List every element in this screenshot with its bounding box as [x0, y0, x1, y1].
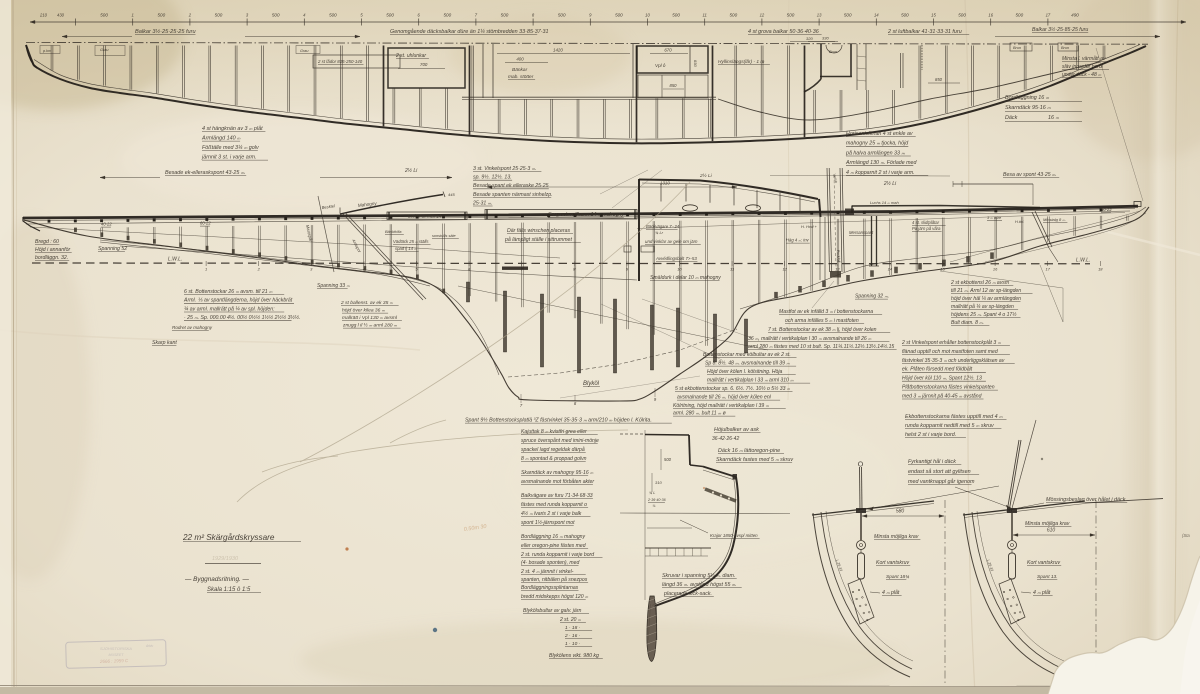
- svg-text:850: 850: [670, 83, 678, 88]
- svg-text:mallrätt på ¼ av sp-längden: mallrätt på ¼ av sp-längden: [951, 303, 1014, 310]
- svg-text:4 ₘ plåt: 4 ₘ plåt: [1033, 589, 1051, 596]
- svg-text:670: 670: [664, 48, 672, 53]
- svg-text:Mersanspant: Mersanspant: [849, 230, 874, 235]
- svg-text:500: 500: [443, 13, 451, 18]
- svg-text:15: 15: [940, 267, 945, 272]
- svg-text:under däck - 48 ₘ: under däck - 48 ₘ: [1062, 72, 1102, 78]
- svg-text:H. Hnd +: H. Hnd +: [801, 224, 818, 229]
- svg-text:runda kopparnit nedtill med 5: runda kopparnit nedtill med 5 ₘ skruv: [905, 423, 994, 429]
- svg-text:med 3 ₘ järnnit på 40-45 ₘ avs: med 3 ₘ järnnit på 40-45 ₘ avstånd: [902, 392, 982, 399]
- svg-text:320: 320: [806, 36, 813, 41]
- svg-text:mallrätt i vertikalplan l 33 ₘ: mallrätt i vertikalplan l 33 ₘ arml 310 …: [707, 378, 794, 384]
- svg-text:Spant 18¾: Spant 18¾: [886, 574, 909, 580]
- svg-text:Bregd : 60: Bregd : 60: [35, 239, 59, 245]
- svg-text:500: 500: [901, 13, 909, 18]
- svg-text:eller oregon-pine fästes med: eller oregon-pine fästes med: [521, 543, 586, 549]
- svg-text:16: 16: [993, 267, 998, 272]
- svg-text:fästvinkel 35·35·3 ₘ och und: fästvinkel 35·35·3 ₘ och underliggskläts…: [902, 358, 1005, 364]
- svg-text:3 st. Vinkelspont 25·25·3 ₘ.: 3 st. Vinkelspont 25·25·3 ₘ.: [473, 166, 536, 172]
- svg-text:2 st ekbottensl 26 ₘ avsm: 2 st ekbottensl 26 ₘ avsm: [950, 280, 1009, 286]
- svg-text:fästes med runda kopparnit o: fästes med runda kopparnit o: [521, 502, 587, 508]
- svg-text:(Sta: (Sta: [1182, 533, 1190, 538]
- svg-text:10: 10: [645, 13, 650, 18]
- svg-text:500: 500: [558, 13, 566, 18]
- svg-text:13: 13: [817, 13, 822, 18]
- svg-text:(4· bosade sponten), med: (4· bosade sponten), med: [521, 560, 579, 566]
- svg-text:Minsta möjliga krav: Minsta möjliga krav: [1025, 521, 1070, 527]
- svg-text:Pa järn på våra: Pa järn på våra: [912, 226, 941, 231]
- svg-text:Sarg och ruffkarm 14 ₘ mahogn: Sarg och ruffkarm 14 ₘ mahogny: [548, 212, 624, 218]
- svg-text:Minstalg 8 ₘ.: Minstalg 8 ₘ.: [1043, 217, 1066, 222]
- svg-text:6 st. Bottenstockar 26 ₘ avsm: 6 st. Bottenstockar 26 ₘ avsm. till 21 ₘ: [184, 289, 273, 295]
- svg-text:Höjd i annanför: Höjd i annanför: [35, 247, 70, 253]
- svg-text:490: 490: [1071, 13, 1079, 18]
- svg-text:Spanning 33 ₘ: Spanning 33 ₘ: [317, 283, 350, 289]
- svg-text:Höjulbalker av ask: Höjulbalker av ask: [714, 427, 759, 433]
- svg-text:40·22: 40·22: [101, 222, 112, 227]
- svg-text:avsmalnande mot förbåten akter: avsmalnande mot förbåten akter: [521, 478, 594, 485]
- svg-text:500: 500: [272, 13, 280, 18]
- svg-text:500: 500: [729, 13, 737, 18]
- svg-text:Skarp kant: Skarp kant: [152, 340, 177, 346]
- svg-text:2½ Li: 2½ Li: [699, 172, 713, 179]
- svg-text:17: 17: [1045, 267, 1050, 272]
- svg-text:1310: 1310: [660, 181, 670, 186]
- svg-text:Bäckvägare 7··34: Bäckvägare 7··34: [646, 224, 680, 229]
- svg-text:Mössingsbeslag över hålet i dä: Mössingsbeslag över hålet i däck: [1046, 496, 1126, 503]
- svg-text:Genomgående däcksbalkar düre ä: Genomgående däcksbalkar düre än 1¼ stömb…: [390, 28, 549, 35]
- svg-text:500: 500: [672, 13, 680, 18]
- svg-text:Skala 1:15 ö 1:5: Skala 1:15 ö 1:5: [207, 587, 251, 593]
- svg-text:Skarndäck fastes med 5 ₘ skruv: Skarndäck fastes med 5 ₘ skruv: [716, 457, 793, 463]
- svg-text:höjd över kilea 36 ₘ: höjd över kilea 36 ₘ: [342, 308, 386, 314]
- svg-text:500: 500: [157, 13, 165, 18]
- svg-text:2 st. uhlunkar: 2 st. uhlunkar: [395, 53, 426, 59]
- svg-text:580: 580: [896, 509, 905, 515]
- svg-text:spruce överspånt med imini-mön: spruce överspånt med imini-mönje: [521, 437, 599, 444]
- svg-text:järnnit 3 st. i varje arm.: järnnit 3 st. i varje arm.: [201, 155, 257, 161]
- svg-text:Mastfot av ek infälld 3 ₘ i bo: Mastfot av ek infälld 3 ₘ i bottenstocka…: [779, 309, 873, 315]
- svg-text:12: 12: [760, 13, 765, 18]
- svg-text:Skarndäck av mahogny 95·16 ₘ: Skarndäck av mahogny 95·16 ₘ: [521, 470, 594, 476]
- svg-text:Horisontalknän 4 st enkle av: Horisontalknän 4 st enkle av: [846, 131, 913, 137]
- svg-text:Armlängd 140 ₘ: Armlängd 140 ₘ: [201, 136, 241, 142]
- svg-text:Grau: Grau: [100, 48, 109, 52]
- svg-text:500: 500: [215, 13, 223, 18]
- svg-text:Krajor 1850-avspl mitten: Krajor 1850-avspl mitten: [710, 533, 758, 538]
- svg-text:2·36·40·36: 2·36·40·36: [647, 498, 666, 502]
- svg-text:36 ₘ, mallrätt i vertikalplan: 36 ₘ, mallrätt i vertikalplan l 30 ₘ avs…: [748, 336, 872, 342]
- svg-text:1 · 10 ·: 1 · 10 ·: [565, 641, 581, 647]
- svg-text:spanten, nitbälen på snezpos: spanten, nitbälen på snezpos: [521, 576, 588, 583]
- svg-text:2½ Li: 2½ Li: [883, 180, 897, 187]
- svg-text:Luchs 14 ₘ mah: Luchs 14 ₘ mah: [870, 200, 900, 205]
- svg-text:10: 10: [677, 267, 682, 272]
- svg-text:2 st luftbalkar 41·31·33·31 fu: 2 st luftbalkar 41·31·33·31 furu: [887, 29, 962, 35]
- svg-text:Spant 13.: Spant 13.: [1037, 574, 1058, 580]
- svg-text:1: 1: [132, 13, 134, 18]
- svg-text:5 st ekbottenstockar sp. 6. 6½: 5 st ekbottenstockar sp. 6. 6½. 7½. 10½ …: [675, 385, 791, 392]
- svg-text:2666 : 1959 C: 2666 : 1959 C: [99, 658, 129, 664]
- svg-text:500: 500: [958, 13, 966, 18]
- svg-text:430: 430: [57, 13, 65, 18]
- svg-text:¼ av arml. mallrätt på ¼ av s: ¼ av arml. mallrätt på ¼ av spl. höjden:: [184, 305, 275, 312]
- svg-text:Besa av spont 43·25 ₘ.: Besa av spont 43·25 ₘ.: [1003, 172, 1057, 178]
- svg-text:Vädtäck 25 ₘ ställs: Vädtäck 25 ₘ ställs: [393, 239, 429, 244]
- svg-text:Kort vantskruv: Kort vantskruv: [1027, 560, 1061, 566]
- svg-text:Brun: Brun: [829, 50, 837, 54]
- svg-text:16: 16: [988, 13, 993, 18]
- svg-text:12: 12: [782, 267, 787, 272]
- svg-text:500: 500: [329, 13, 337, 18]
- svg-text:Armlängd 130 ₘ. Förlade med: Armlängd 130 ₘ. Förlade med: [845, 160, 917, 166]
- svg-text:Fyrkantigt hål i däck: Fyrkantigt hål i däck: [908, 458, 956, 465]
- svg-text:830: 830: [693, 60, 698, 67]
- svg-text:3 ₘ wire: 3 ₘ wire: [987, 215, 1002, 220]
- svg-text:— Byggnadsritning. —: — Byggnadsritning. —: [184, 576, 250, 583]
- svg-text:sp. 9½. 12½. 13.: sp. 9½. 12½. 13.: [473, 174, 512, 181]
- svg-text:med vantknappl går igenom: med vantknappl går igenom: [908, 478, 975, 485]
- svg-text:släv innanför bordl: släv innanför bordl: [1062, 64, 1104, 70]
- svg-text:Däck: Däck: [1005, 115, 1018, 121]
- svg-text:Besade ek-elleraskspont 43·25: Besade ek-elleraskspont 43·25 ₘ.: [165, 170, 246, 176]
- svg-text:Bordläggning 16 ₘ mahogny: Bordläggning 16 ₘ mahogny: [521, 534, 586, 540]
- svg-text:Blykölsbultar av galv. järn: Blykölsbultar av galv. järn: [523, 608, 582, 614]
- svg-text:2½ Li: 2½ Li: [404, 167, 418, 174]
- svg-text:14: 14: [888, 267, 893, 272]
- svg-text:2 · 16 ·: 2 · 16 ·: [564, 633, 581, 639]
- svg-text:500: 500: [501, 13, 509, 18]
- svg-text:Besade spanten närmast sinhelz: Besade spanten närmast sinhelzp.: [473, 192, 553, 198]
- svg-text:höjdens 25 ₘ. Spant 4 o 17½: höjdens 25 ₘ. Spant 4 o 17½: [951, 311, 1017, 318]
- svg-text:Vpl ô: Vpl ô: [655, 63, 666, 68]
- svg-text:850: 850: [935, 77, 943, 82]
- svg-text:Höjd över kölen l. kölsitning: Höjd över kölen l. kölsitning. Höja: [707, 369, 782, 375]
- svg-text:25·31 ₘ.: 25·31 ₘ.: [472, 200, 492, 206]
- svg-text:sonstvills säte: sonstvills säte: [432, 234, 456, 238]
- svg-text:L.W.L.: L.W.L.: [1076, 258, 1090, 264]
- svg-text:på halva armlängen 33 ₘ: på halva armlängen 33 ₘ: [845, 149, 905, 156]
- svg-text:Hyllinslängs(lår) - 1 m: Hyllinslängs(lår) - 1 m: [718, 58, 764, 65]
- svg-text:Bottenstockar med kölbultar av: Bottenstockar med kölbultar av ek 2 st.: [703, 352, 791, 358]
- svg-text:2 st. 4 ₘ järnnit i vinkel-: 2 st. 4 ₘ järnnit i vinkel-: [520, 569, 574, 575]
- svg-text:22 m² Skärgårdskryssare: 22 m² Skärgårdskryssare: [182, 532, 275, 542]
- svg-text:Balkar 3½·25·25·25 furu: Balkar 3½·25·25·25 furu: [135, 28, 196, 35]
- svg-text:400: 400: [516, 57, 524, 62]
- svg-text:Kölritning, höjd mallrätt i ve: Kölritning, höjd mallrätt i vertikalplan…: [673, 403, 770, 409]
- svg-text:· 25 ₘ. Sp. 000.00 4½. 00½ 0½: · 25 ₘ. Sp. 000.00 4½. 00½ 0½½ 1½½ 2½½ 3…: [184, 314, 301, 321]
- svg-text:Blyköl: Blyköl: [583, 381, 600, 387]
- svg-text:Däck 16 ₘ lättoregon-pine: Däck 16 ₘ lättoregon-pine: [718, 448, 780, 454]
- svg-text:Brun: Brun: [1061, 46, 1069, 50]
- svg-text:500: 500: [1015, 13, 1023, 18]
- svg-text:500: 500: [100, 13, 108, 18]
- svg-text:Plåtbottenstockarna fästes vin: Plåtbottenstockarna fästes vinkelspanten: [902, 384, 995, 391]
- svg-text:Bordläggningssplintarnas: Bordläggningssplintarnas: [521, 585, 579, 591]
- svg-text:4 st. slidtplåtar: 4 st. slidtplåtar: [912, 220, 940, 225]
- svg-text:500: 500: [615, 13, 623, 18]
- svg-text:SJÖHISTORISKA: SJÖHISTORISKA: [100, 646, 132, 651]
- svg-text:Arkiv: Arkiv: [145, 644, 153, 648]
- svg-text:och arma infälles 5 ₘ i mastfo: och arma infälles 5 ₘ i mastfoten: [785, 318, 859, 324]
- svg-text:flänad upptill och mot mast: flänad upptill och mot mastfoten samt me…: [902, 349, 998, 355]
- svg-text:2 st lådor 815·250·140: 2 st lådor 815·250·140: [317, 59, 363, 64]
- svg-text:längd 36 ₘ. avstånd högst 55: längd 36 ₘ. avstånd högst 55 ₘ.: [662, 581, 737, 588]
- svg-text:endast så stort att gylitsen: endast så stort att gylitsen: [908, 468, 971, 475]
- svg-text:4 ₘ kopparnit 2 st i varje a: 4 ₘ kopparnit 2 st i varje arm.: [846, 170, 915, 176]
- svg-text:till 21 ₘ. Arml 12 av sp-län: till 21 ₘ. Arml 12 av sp-längden: [951, 288, 1021, 294]
- svg-text:Där fälls winschen placeras: Där fälls winschen placeras: [507, 228, 571, 234]
- svg-text:Bänkar: Bänkar: [512, 67, 528, 73]
- svg-text:Sp 8. 8½. 48 ₘ. avsmalnande t: Sp 8. 8½. 48 ₘ. avsmalnande till 39 ₘ: [705, 360, 790, 367]
- svg-text:4½ ₘ lvaris 2 st i varje balk: 4½ ₘ lvaris 2 st i varje balk: [521, 510, 582, 517]
- svg-text:placerade sick-sack.: placerade sick-sack.: [663, 591, 712, 597]
- svg-text:4 st hängknän av 3 ₘ plåt: 4 st hängknän av 3 ₘ plåt: [202, 125, 263, 132]
- svg-text:helst 2 st i varje bord.: helst 2 st i varje bord.: [905, 432, 956, 438]
- svg-text:11: 11: [703, 13, 707, 18]
- svg-text:arml. 280 ₘ. bult 11 ₘ ø: arml. 280 ₘ. bult 11 ₘ ø: [673, 411, 726, 417]
- svg-text:spackel lagd regeldak därpå: spackel lagd regeldak därpå: [521, 446, 585, 453]
- svg-text:Häg 4 ₘ: inv: Häg 4 ₘ: inv: [786, 238, 810, 243]
- svg-text:2 st. 20 ₘ: 2 st. 20 ₘ: [559, 617, 582, 623]
- svg-text:8 ₘ spontad & proppad golvn: 8 ₘ spontad & proppad golvn: [521, 456, 587, 462]
- svg-text:på lämpligt ställe i sittrumme: på lämpligt ställe i sittrummet: [504, 236, 572, 243]
- svg-text:700: 700: [420, 62, 428, 67]
- svg-text:Bänkfrilla: Bänkfrilla: [385, 229, 402, 234]
- svg-text:Grau: Grau: [300, 49, 309, 53]
- svg-text:18: 18: [1098, 267, 1103, 272]
- svg-text:Spanning 32 ₘ.: Spanning 32 ₘ.: [855, 294, 889, 300]
- svg-text:MUSEET: MUSEET: [109, 653, 125, 657]
- svg-text:¾ Lr: ¾ Lr: [655, 230, 664, 235]
- svg-text:1 · 18 ·: 1 · 18 ·: [565, 625, 581, 631]
- svg-text:Rodret av mahogny: Rodret av mahogny: [172, 325, 213, 330]
- svg-text:2 st. runda kopparnit i varje: 2 st. runda kopparnit i varje bord: [520, 552, 594, 558]
- svg-text:spad lj 14 ₘ: spad lj 14 ₘ: [395, 246, 417, 251]
- svg-text:13: 13: [835, 267, 840, 272]
- svg-text:14: 14: [874, 13, 879, 18]
- svg-text:Arml. ⅕ av spantlängderna, höj: Arml. ⅕ av spantlängderna, höjd över häc…: [183, 298, 293, 304]
- svg-text:2 st ballenst. av ek 35 ₘ: 2 st ballenst. av ek 35 ₘ: [340, 300, 394, 306]
- svg-text:Bult diam. 8 ₘ.: Bult diam. 8 ₘ.: [951, 320, 984, 326]
- svg-text:60·22: 60·22: [200, 221, 211, 226]
- svg-text:1929/1930: 1929/1930: [212, 556, 239, 562]
- svg-text:Brun: Brun: [1013, 46, 1021, 50]
- svg-text:höjd över häl ¼ av armlängden: höjd över häl ¼ av armlängden: [951, 296, 1021, 302]
- svg-text:Höjd över köl 110 ₘ. Spant 12: Höjd över köl 110 ₘ. Spant 12½. 13: [902, 375, 982, 382]
- svg-text:avsmalnande till 26 ₘ. höjd ö: avsmalnande till 26 ₘ. höjd över kölen e…: [677, 395, 772, 401]
- svg-text:210: 210: [39, 13, 48, 18]
- svg-text:H.tid.: H.tid.: [1015, 219, 1024, 224]
- svg-text:bordläggn. 32.: bordläggn. 32.: [35, 255, 68, 261]
- svg-text:Besade spant ek elleraske 25·2: Besade spant ek elleraske 25·25: [473, 183, 549, 189]
- svg-text:znugg l il ½ ₘ arml 280 ₘ: znugg l il ½ ₘ arml 280 ₘ: [342, 322, 398, 329]
- svg-text:Skruvar i spanning 5½ ₘ. diam.: Skruvar i spanning 5½ ₘ. diam.: [662, 572, 735, 579]
- svg-text:Balkar 3½·25·85·25 furu: Balkar 3½·25·85·25 furu: [1032, 26, 1088, 33]
- svg-text:L.W.L.: L.W.L.: [168, 257, 182, 263]
- svg-text:330: 330: [822, 36, 829, 41]
- svg-text:500: 500: [787, 13, 795, 18]
- svg-text:Balkvägare av furu 71·34·68·33: Balkvägare av furu 71·34·68·33: [521, 493, 593, 499]
- svg-text:arml 280 ₘ fästes med 10 st b: arml 280 ₘ fästes med 10 st bult. Sp. 11…: [748, 343, 894, 350]
- svg-text:mallrätt i Vpl 130 ₘ avsml: mallrätt i Vpl 130 ₘ avsml: [342, 315, 398, 321]
- svg-text:17: 17: [1046, 13, 1051, 18]
- svg-text:500: 500: [664, 457, 672, 462]
- svg-text:¾ L: ¾ L: [649, 491, 655, 495]
- svg-text:Fößtälle med 3¼ ₘ golv: Fößtälle med 3¼ ₘ golv: [202, 145, 259, 151]
- svg-text:445: 445: [448, 192, 455, 197]
- svg-text:Smäldurk i delar 10 ₘ mahogny: Smäldurk i delar 10 ₘ mahogny: [650, 275, 721, 281]
- svg-text:mahogny 25 ₘ tjocka, höjd: mahogny 25 ₘ tjocka, höjd: [846, 141, 909, 147]
- svg-text:1420: 1420: [553, 48, 563, 53]
- svg-text:36·42·26·42: 36·42·26·42: [712, 436, 739, 442]
- svg-text:p.km: p.km: [42, 49, 51, 53]
- svg-text:500: 500: [386, 13, 394, 18]
- svg-text:Spant 9½ Bottenstocksplatlä ³: Spant 9½ Bottenstocksplatlä ³Z fästvinke…: [465, 417, 652, 424]
- svg-text:Luckor av mek 14 ₘ: Luckor av mek 14 ₘ: [408, 214, 445, 219]
- svg-text:Ekbottenstockarna fästes uppti: Ekbottenstockarna fästes upptill med 4 ₘ: [905, 414, 1003, 420]
- svg-text:und vinklar av gele om järn: und vinklar av gele om järn: [645, 239, 698, 244]
- svg-text:Skarndäck 95·16 ₘ: Skarndäck 95·16 ₘ: [1005, 105, 1051, 111]
- svg-text:500: 500: [844, 13, 852, 18]
- svg-text:Kajuttak 8 ₘ kvistfri grea ell: Kajuttak 8 ₘ kvistfri grea eller: [521, 429, 587, 435]
- svg-text:ek. Plåten försedd med föl: ek. Plåten försedd med földbält: [902, 366, 973, 373]
- svg-text:1: 1: [205, 267, 207, 272]
- svg-text:7 st. Bottenstockar av ek 38: 7 st. Bottenstockar av ek 38 ₘ lj, höjd …: [768, 327, 877, 333]
- svg-text:610: 610: [1047, 528, 1056, 534]
- svg-text:bredd midskepps högst 120 ₘ: bredd midskepps högst 120 ₘ: [521, 594, 589, 600]
- svg-text:Minsta möjliga krav: Minsta möjliga krav: [874, 534, 919, 540]
- svg-text:60·22: 60·22: [1101, 207, 1112, 212]
- svg-text:15: 15: [931, 13, 936, 18]
- svg-text:4 ₘ plåt: 4 ₘ plåt: [882, 589, 900, 596]
- svg-text:Kort vantskruv: Kort vantskruv: [876, 560, 910, 566]
- svg-text:Bordläggning 16 ₘ: Bordläggning 16 ₘ: [1005, 95, 1050, 101]
- svg-text:4 st grova balkar 50·36·40·36: 4 st grova balkar 50·36·40·36: [748, 29, 819, 35]
- svg-text:mab. stötter: mab. stötter: [508, 74, 534, 80]
- svg-text:Avvédlingsbolt 7>·53: Avvédlingsbolt 7>·53: [655, 256, 697, 261]
- svg-text:Blykölens vikt. 980 kg: Blykölens vikt. 980 kg: [549, 653, 599, 659]
- svg-text:spont 1½-järnspont mot: spont 1½-järnspont mot: [521, 519, 575, 526]
- svg-text:Spanning 52: Spanning 52: [98, 246, 127, 252]
- svg-text:310: 310: [655, 480, 662, 485]
- svg-text:16 ₘ: 16 ₘ: [1048, 115, 1059, 121]
- svg-text:2 st Vinkelspont erhåller bott: 2 st Vinkelspont erhåller bottenstockplå…: [901, 339, 1002, 346]
